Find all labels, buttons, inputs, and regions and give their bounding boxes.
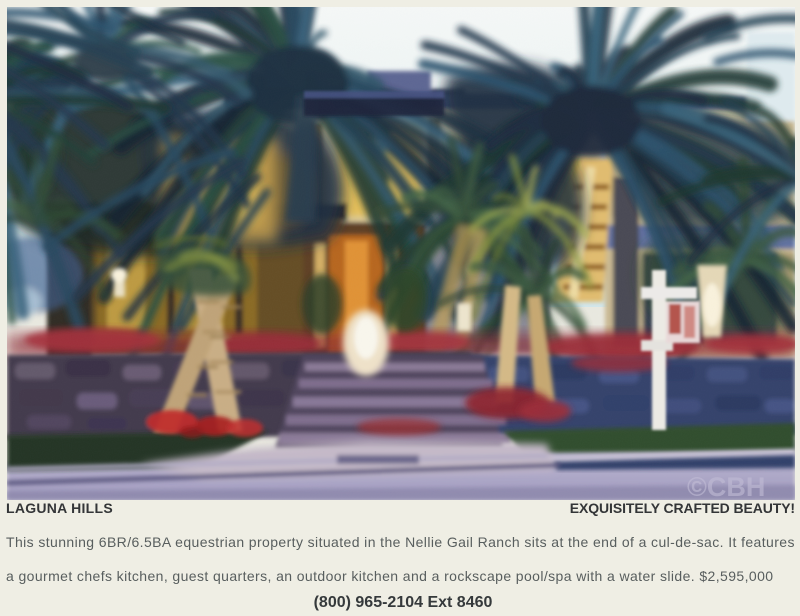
- svg-text:©CBH: ©CBH: [687, 472, 765, 500]
